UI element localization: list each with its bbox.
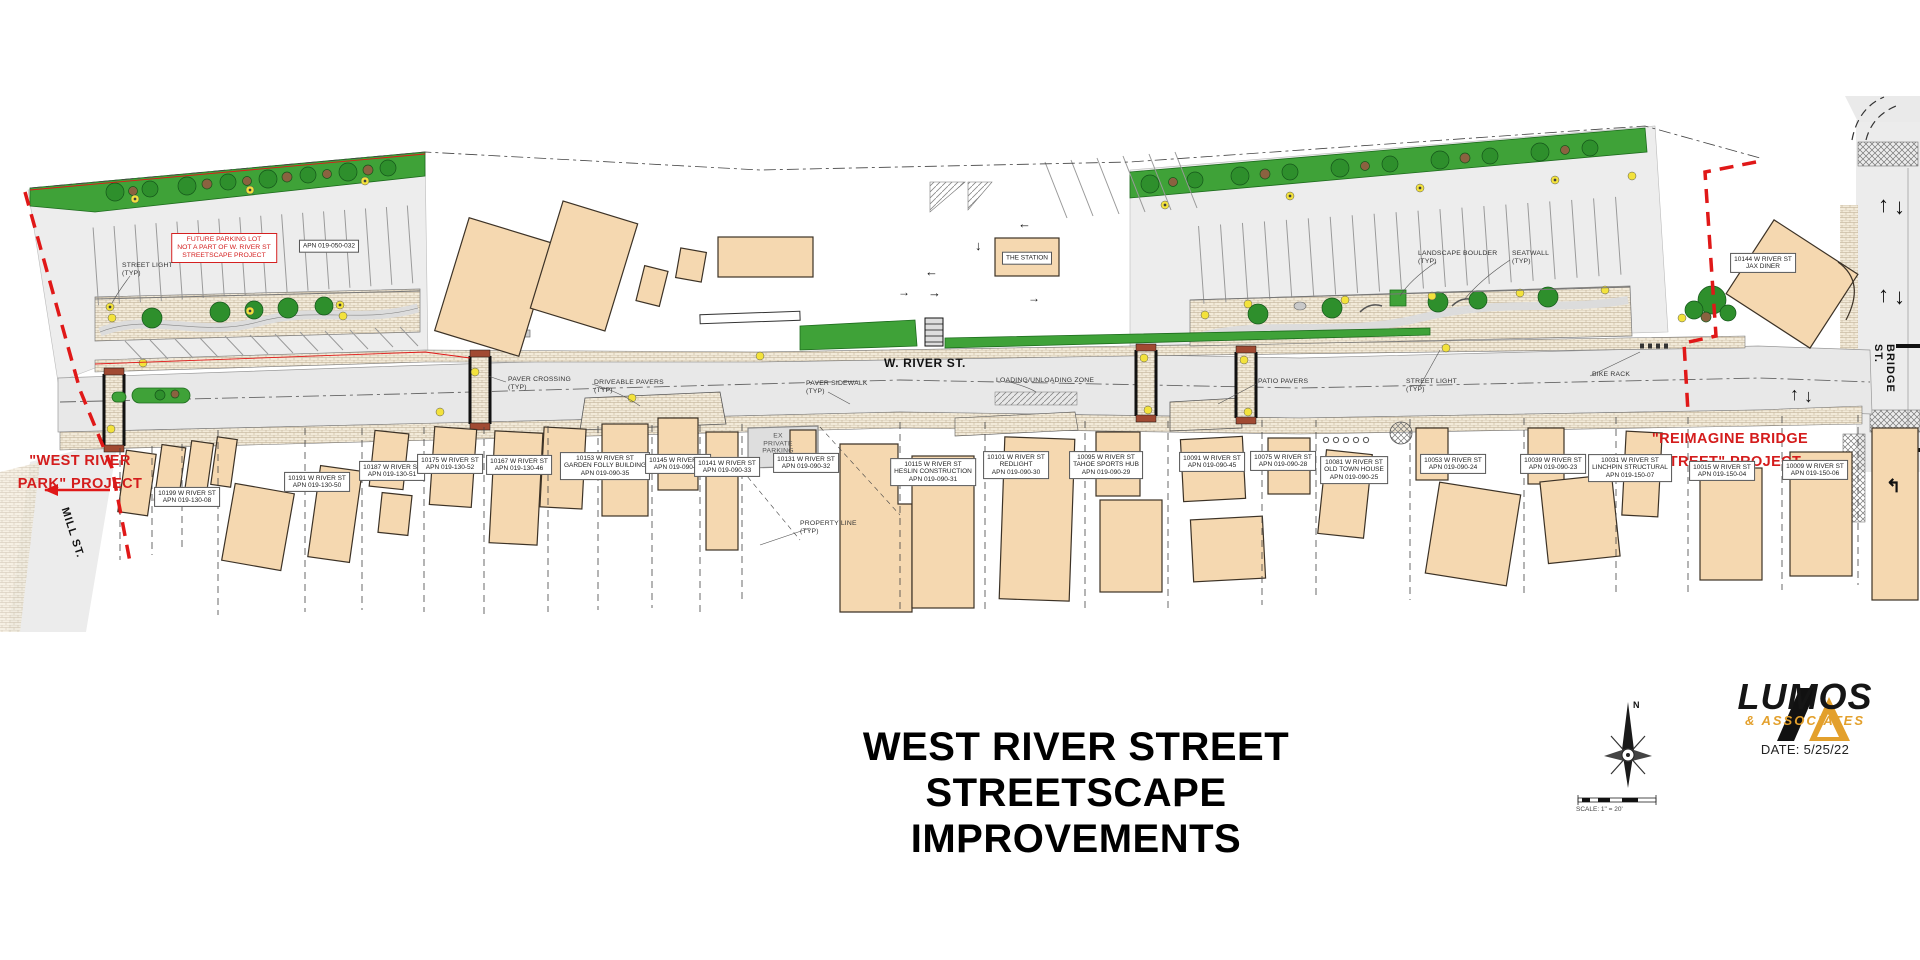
turn-arrow: ↰: [1886, 476, 1901, 496]
lane-arrow: →: [898, 285, 910, 299]
landscape-boulder: [1294, 302, 1306, 310]
turn-arrow: ↑: [1878, 192, 1889, 217]
lane-arrow: →: [1028, 291, 1040, 305]
turn-arrow: ↓: [1894, 284, 1905, 309]
sheet: ← → ↓ ← → →: [0, 0, 1920, 960]
the-station-building: [995, 238, 1059, 276]
north-arrow: N: [1604, 700, 1652, 788]
scale-bar: [1578, 795, 1656, 805]
patio-pavers-area: [1170, 398, 1242, 431]
jax-diner-building: [1726, 220, 1858, 348]
lane-arrow: ←: [925, 264, 938, 279]
lane-arrow: →: [928, 285, 941, 300]
mill-street-road: [0, 440, 118, 632]
stepped-building: [840, 444, 912, 612]
tree-grate: [1390, 422, 1412, 444]
lumos-logo-mark: [1777, 688, 1850, 741]
stairs: [925, 318, 943, 346]
north-label-glyph: N: [1633, 700, 1640, 710]
site-plan-drawing: ← → ↓ ← → →: [0, 0, 1920, 960]
lane-arrow: ←: [1018, 216, 1031, 231]
loading-zone: [995, 392, 1077, 405]
lane-arrow: ↓: [975, 238, 982, 253]
turn-arrow: ↑: [1878, 282, 1889, 307]
turn-arrow: ↓: [1804, 386, 1813, 406]
turn-arrow: ↓: [1894, 194, 1905, 219]
turn-arrow: ↑: [1790, 384, 1799, 404]
